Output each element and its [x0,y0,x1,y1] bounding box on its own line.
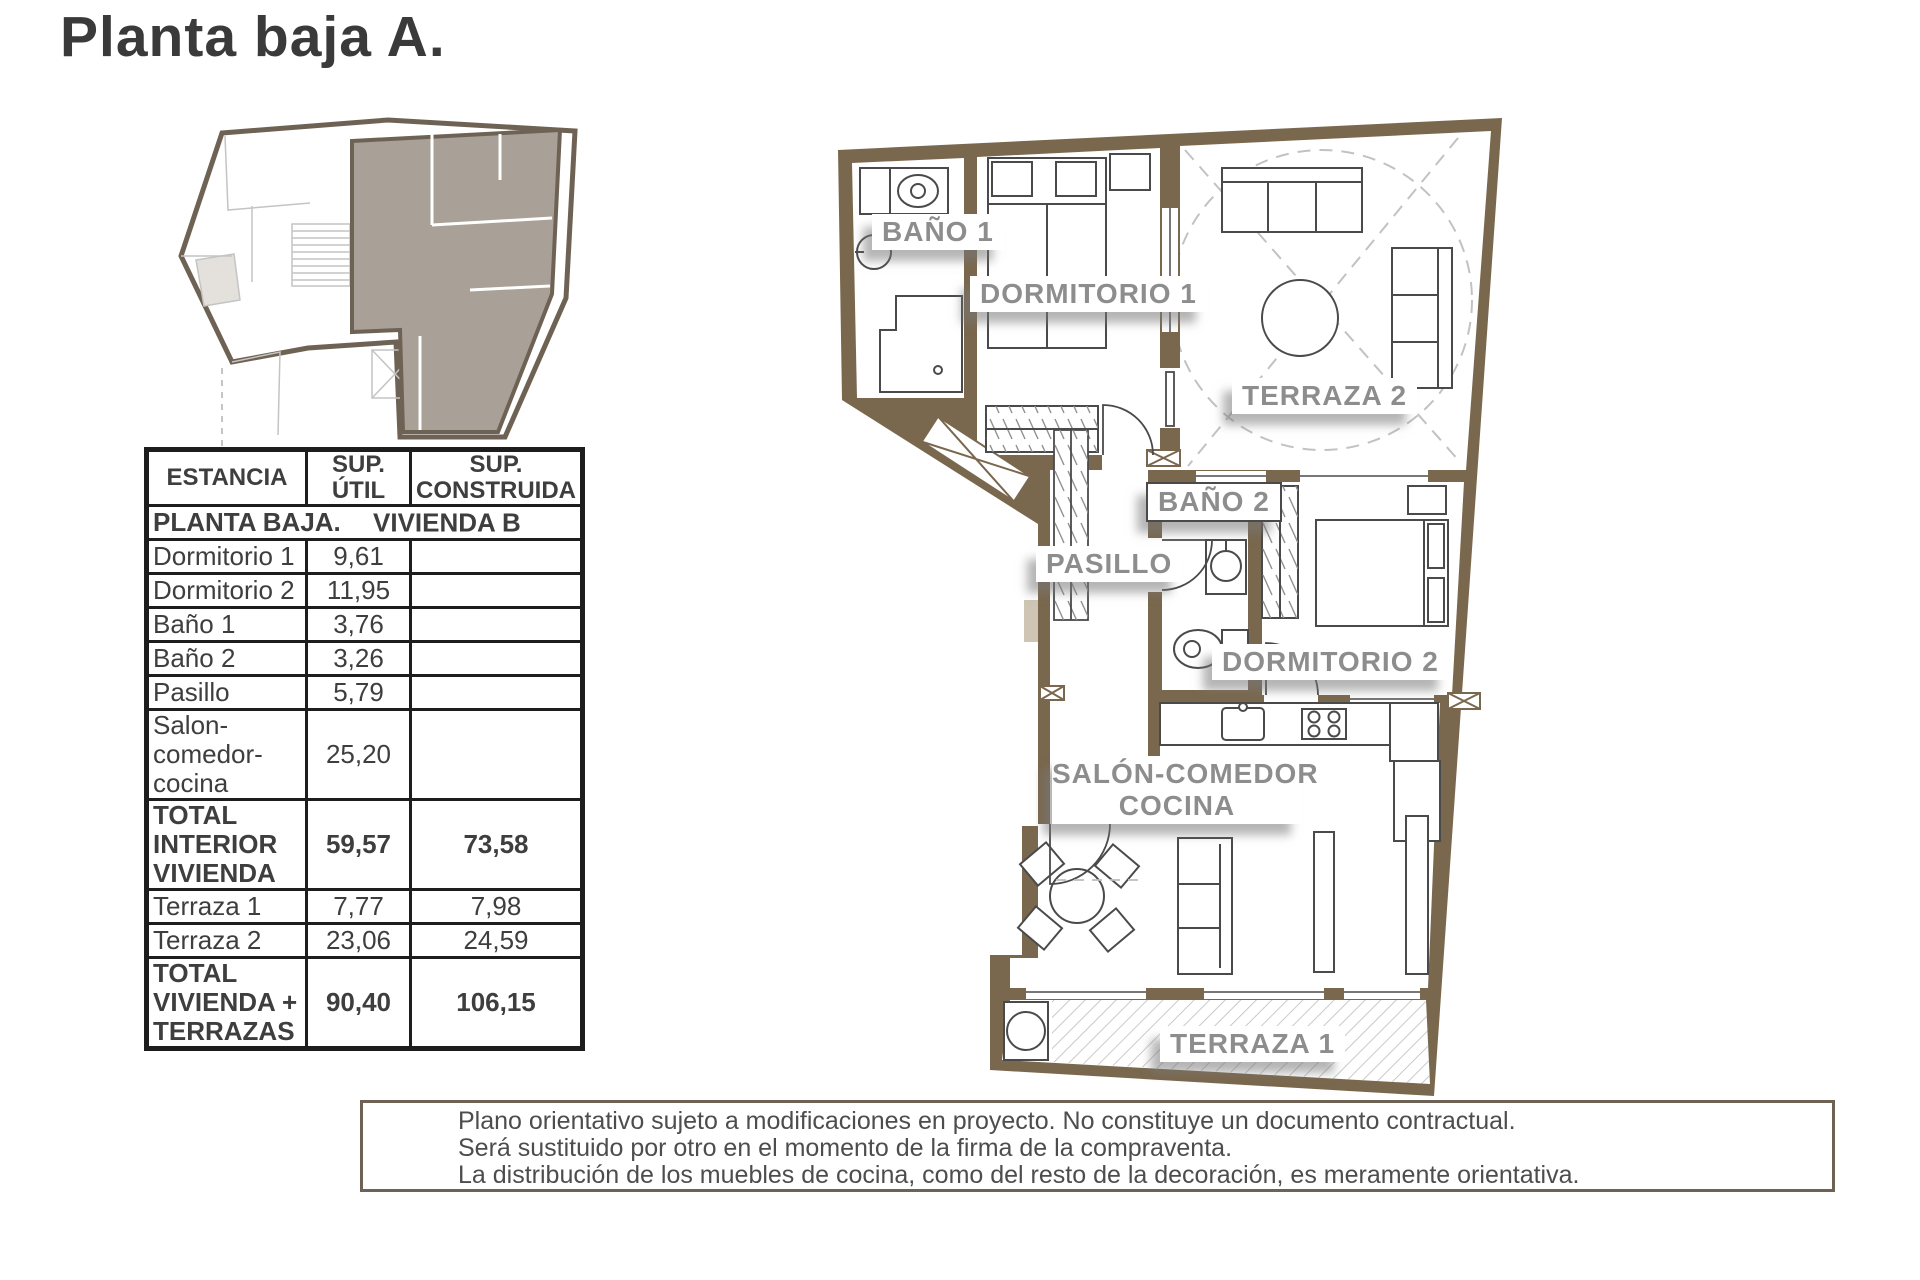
row-util: 90,40 [307,958,411,1049]
table-row: Salon-comedor-cocina 25,20 [147,710,583,800]
row-name: Baño 2 [147,642,307,676]
page-title: Planta baja A. [60,4,446,70]
row-util: 3,76 [307,608,411,642]
table-section-row: PLANTA BAJA. VIVIENDA B [147,506,583,540]
label-terraza2: TERRAZA 2 [1232,378,1417,414]
row-construida: 7,98 [411,890,583,924]
row-util: 11,95 [307,574,411,608]
row-util: 25,20 [307,710,411,800]
disclaimer-line: La distribución de los muebles de cocina… [458,1162,1822,1189]
table-row: Baño 1 3,76 [147,608,583,642]
table-row: Dormitorio 1 9,61 [147,540,583,574]
disclaimer-line: Será sustituido por otro en el momento d… [458,1135,1822,1162]
label-terraza1: TERRAZA 1 [1160,1026,1345,1062]
label-pasillo: PASILLO [1036,546,1182,582]
label-salon-line2: COCINA [1052,790,1302,822]
pasillo-wardrobe [1054,430,1088,620]
label-salon-line1: SALÓN-COMEDOR [1052,758,1302,790]
table-row: Terraza 2 23,06 24,59 [147,924,583,958]
table-row: Pasillo 5,79 [147,676,583,710]
section-right: VIVIENDA B [373,507,521,538]
row-construida: 73,58 [411,800,583,890]
table-row: Terraza 1 7,77 7,98 [147,890,583,924]
disclaimer-line: Plano orientativo sujeto a modificacione… [458,1108,1822,1135]
key-plan-building [181,120,575,446]
header-estancia: ESTANCIA [147,450,307,506]
row-util: 23,06 [307,924,411,958]
table-row: Baño 2 3,26 [147,642,583,676]
row-construida: 106,15 [411,958,583,1049]
row-name: Terraza 2 [147,924,307,958]
table-row-total-interior: TOTAL INTERIOR VIVIENDA 59,57 73,58 [147,800,583,890]
row-util: 7,77 [307,890,411,924]
disclaimer-box: Plano orientativo sujeto a modificacione… [360,1100,1835,1192]
row-name: Terraza 1 [147,890,307,924]
label-bano1: BAÑO 1 [872,214,1004,250]
row-name: Dormitorio 1 [147,540,307,574]
row-name: Pasillo [147,676,307,710]
label-dormitorio2: DORMITORIO 2 [1212,644,1449,680]
row-util: 9,61 [307,540,411,574]
area-table: ESTANCIA SUP. ÚTIL SUP. CONSTRUIDA PLANT… [144,447,585,1051]
table-row-total-vivienda: TOTAL VIVIENDA + TERRAZAS 90,40 106,15 [147,958,583,1049]
key-plan [140,98,590,450]
row-name: TOTAL INTERIOR VIVIENDA [147,800,307,890]
page: Planta baja A. [0,0,1920,1280]
row-util: 3,26 [307,642,411,676]
row-name: Salon-comedor-cocina [147,710,307,800]
header-sup-util: SUP. ÚTIL [307,450,411,506]
key-plan-terrace [196,254,240,306]
table-header-row: ESTANCIA SUP. ÚTIL SUP. CONSTRUIDA [147,450,583,506]
label-bano2: BAÑO 2 [1146,482,1282,522]
row-construida: 24,59 [411,924,583,958]
row-name: TOTAL VIVIENDA + TERRAZAS [147,958,307,1049]
label-salon-comedor-cocina: SALÓN-COMEDOR COCINA [1052,756,1302,824]
row-util: 5,79 [307,676,411,710]
section-left: PLANTA BAJA. [153,507,341,537]
washing-machine [1004,1002,1048,1060]
row-name: Baño 1 [147,608,307,642]
row-construida [411,574,583,608]
row-construida [411,676,583,710]
row-construida [411,540,583,574]
header-sup-construida: SUP. CONSTRUIDA [411,450,583,506]
row-construida [411,710,583,800]
row-construida [411,642,583,676]
row-util: 59,57 [307,800,411,890]
section-cell: PLANTA BAJA. VIVIENDA B [147,506,583,540]
table-row: Dormitorio 2 11,95 [147,574,583,608]
row-name: Dormitorio 2 [147,574,307,608]
label-dormitorio1: DORMITORIO 1 [970,276,1207,312]
row-construida [411,608,583,642]
